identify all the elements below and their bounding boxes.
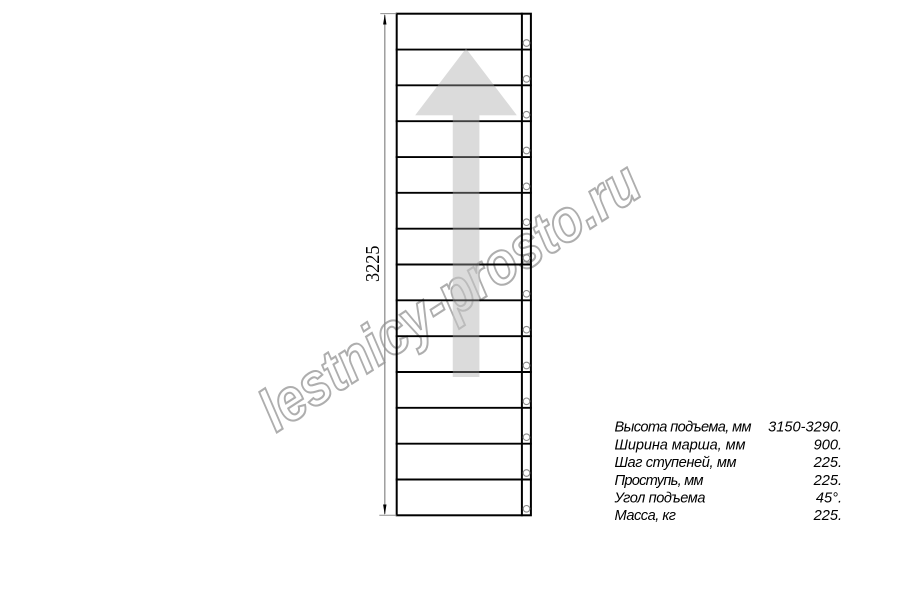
svg-text:Ширина марша, мм: Ширина марша, мм xyxy=(615,437,746,453)
svg-text:3225: 3225 xyxy=(362,246,384,283)
svg-text:225.: 225. xyxy=(813,508,842,524)
svg-text:Проступь, мм: Проступь, мм xyxy=(615,473,704,489)
svg-text:225.: 225. xyxy=(813,455,842,471)
svg-text:Угол подъема: Угол подъема xyxy=(614,491,706,507)
svg-text:900.: 900. xyxy=(814,437,842,453)
svg-text:225.: 225. xyxy=(813,473,842,489)
svg-text:Высота подъема, мм: Высота подъема, мм xyxy=(615,420,752,436)
svg-text:Масса, кг: Масса, кг xyxy=(615,508,677,524)
svg-text:3150-3290.: 3150-3290. xyxy=(768,420,842,436)
svg-text:45°.: 45°. xyxy=(816,491,842,507)
svg-text:Шаг ступеней, мм: Шаг ступеней, мм xyxy=(615,455,737,471)
